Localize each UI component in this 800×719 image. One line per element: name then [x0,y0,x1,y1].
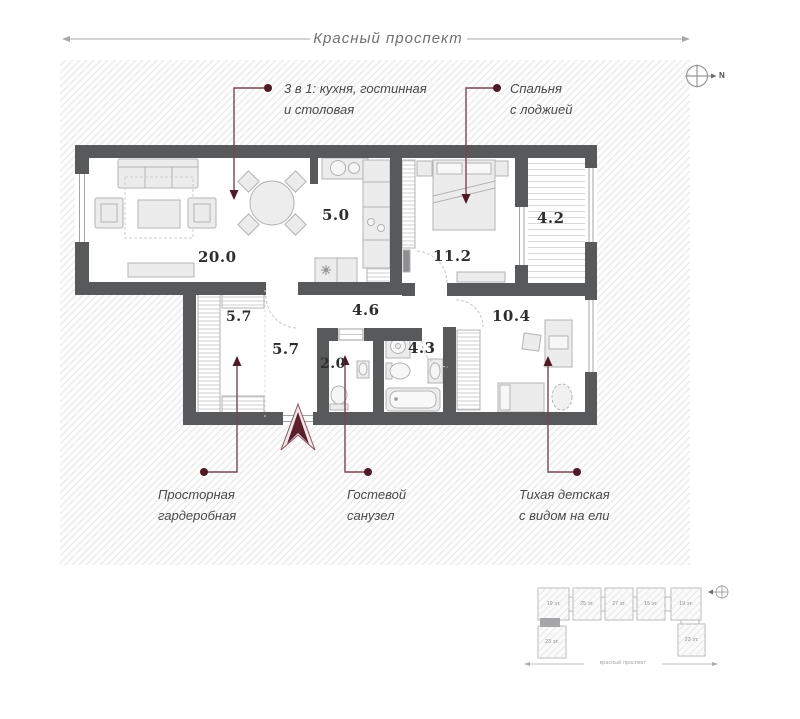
armchair-right [188,198,216,228]
callout-bedroom: Спальня с лоджией [510,78,573,120]
wardrobe-shelving-left [198,288,220,418]
minimap-block-1: 19 эт. [538,601,569,607]
tv-stand [128,263,194,277]
minimap-block-4: 15 эт. [637,601,665,607]
children-wardrobe [457,330,480,410]
bedroom-tv [403,250,410,272]
room-area-children: 10.4 [492,307,531,325]
minimap-block-3: 27 эт. [605,601,633,607]
kitchen-counter [322,158,368,179]
wc-door [339,329,363,340]
beanbag [552,384,572,410]
compass-icon [685,65,717,88]
guest-wc-sink [357,361,369,378]
minimap-block-5: 19 эт. [671,601,701,607]
room-area-hall: 5.7 [272,340,300,358]
minimap-block-2: 25 эт. [573,601,601,607]
minimap-current-section [540,618,560,627]
nightstand-left [417,161,432,176]
site-minimap [524,586,729,667]
sofa [118,159,198,188]
minimap-block-right-wing: 23 эт. [678,637,705,643]
bedroom-wardrobe [402,160,415,248]
boiler-unit [315,258,357,283]
floor-plan-page: Красный проспект N 3 в 1: кухня, гостинн… [0,0,800,719]
street-label: Красный проспект [312,30,464,47]
children-bed [498,383,544,412]
bathroom-toilet [386,363,410,379]
room-area-corridor: 4.6 [352,301,380,319]
callout-kitchen-living: 3 в 1: кухня, гостинная и столовая [284,78,427,120]
callout-children: Тихая детская с видом на ели [519,484,610,526]
dresser [457,272,505,282]
callout-wardrobe: Просторная гардеробная [158,484,236,526]
minimap-compass-icon [708,586,729,599]
room-area-bedroom: 11.2 [433,247,472,265]
coffee-table [138,200,180,228]
kitchen-column [363,160,390,268]
bathtub [386,388,440,411]
bathroom-sink [428,359,443,383]
room-area-guest-wc: 2.0 [320,356,346,372]
callout-guest-wc: Гостевой санузел [347,484,406,526]
room-area-bathroom: 4.3 [408,339,436,357]
minimap-block-left-wing: 23 эт. [538,639,566,645]
room-area-living: 20.0 [198,248,237,266]
room-area-kitchen: 5.0 [322,206,350,224]
armchair-left [95,198,123,228]
compass-north-label: N [719,71,725,80]
room-area-wardrobe: 5.7 [226,309,252,325]
minimap-street-label: красный проспект [586,660,660,666]
room-area-loggia: 4.2 [537,209,565,227]
